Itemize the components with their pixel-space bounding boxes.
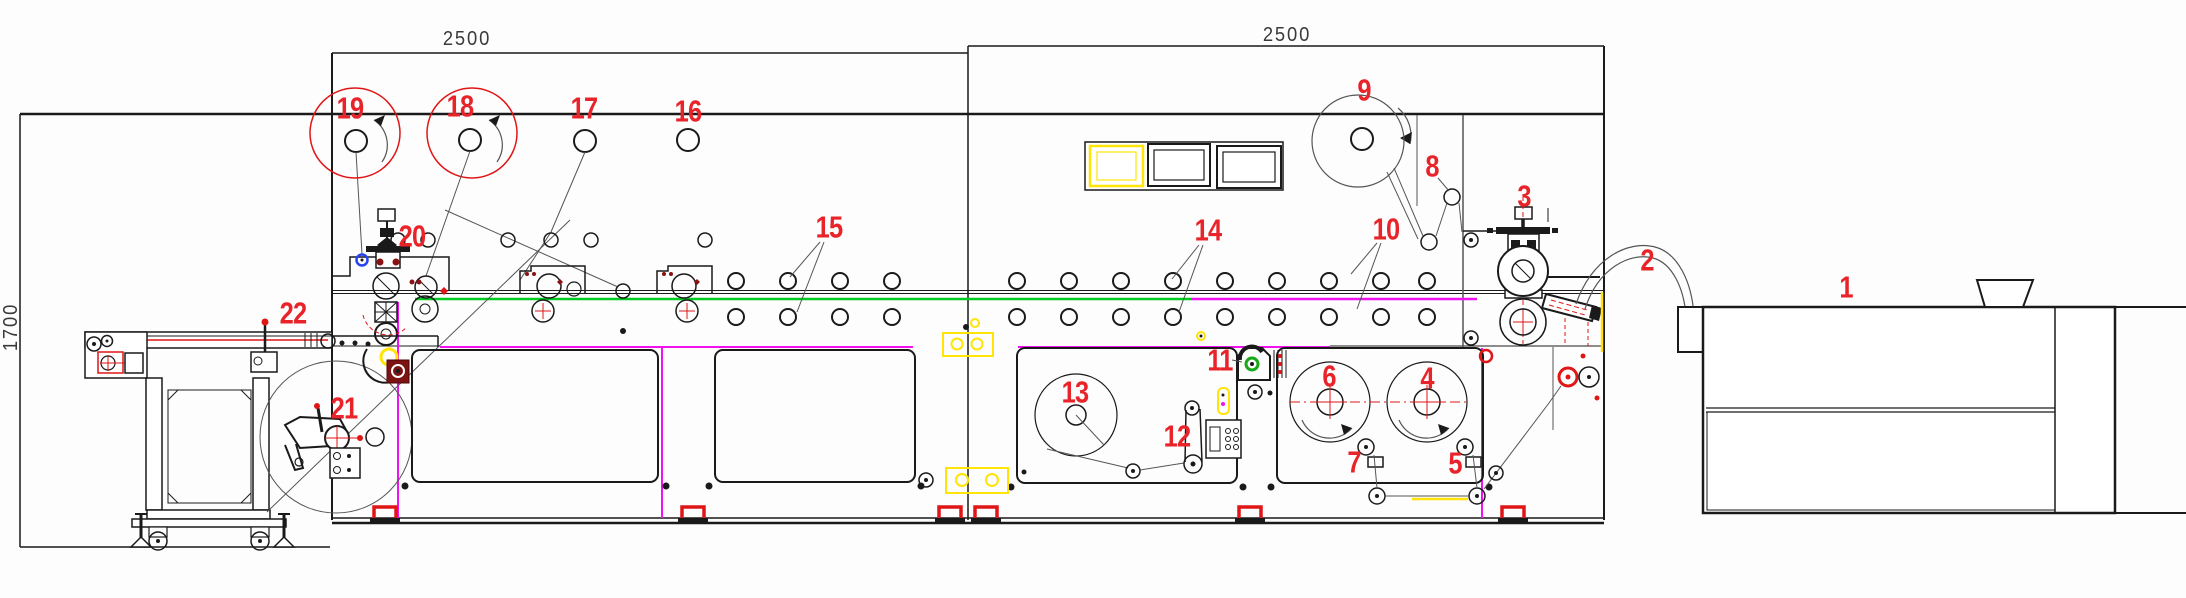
rotation-arrow-19: [374, 120, 387, 162]
foot-pad: [678, 518, 708, 523]
exit-chute: [1542, 294, 1596, 321]
press-station-3: [1463, 196, 1602, 362]
handle: [378, 209, 395, 221]
rivet-roller: [1009, 309, 1025, 325]
roll-9: [1312, 95, 1404, 187]
hopper: [1977, 280, 2033, 307]
part-label-22: 22: [280, 298, 307, 329]
rivet-roller: [728, 273, 744, 289]
panel-window: [412, 350, 658, 482]
leveling-foot: [939, 507, 961, 518]
dimension-height-1700: 1700: [1, 303, 21, 351]
leveling-foot: [1239, 507, 1261, 518]
roller-18: [459, 129, 481, 151]
rivet-roller: [1269, 273, 1285, 289]
rivet-roller: [1113, 309, 1129, 325]
rivet-roller: [832, 273, 848, 289]
leveling-foot: [975, 507, 997, 518]
control-panel: [1085, 142, 1283, 190]
part-label-21: 21: [331, 393, 358, 424]
idler-circle: [698, 233, 712, 247]
rivet-roller: [1373, 273, 1389, 289]
machine-feet: [370, 507, 1528, 523]
panel-window: [715, 350, 915, 482]
part-label-1: 1: [1839, 272, 1852, 303]
leader-lines: [790, 178, 1449, 362]
rivet-roller: [1373, 309, 1389, 325]
rivet-roller: [832, 309, 848, 325]
part-label-20: 20: [399, 221, 426, 252]
part-label-11: 11: [1207, 345, 1232, 376]
rivet-roller: [1419, 309, 1435, 325]
leveling-foot: [682, 507, 704, 518]
foot-pad: [971, 518, 1001, 523]
part-label-18: 18: [447, 91, 474, 122]
part-label-19: 19: [337, 93, 364, 124]
machine-1-body: [1703, 307, 2115, 513]
foot-pad: [370, 518, 400, 523]
station-11: [1238, 346, 1286, 399]
part-label-9: 9: [1357, 75, 1370, 106]
part-label-13: 13: [1062, 377, 1089, 408]
leveling-foot: [374, 507, 396, 518]
part-label-8: 8: [1425, 151, 1438, 182]
rivet-roller: [1321, 309, 1337, 325]
part-label-17: 17: [571, 93, 598, 124]
upper-rollers-16-19: [345, 129, 699, 152]
rivet-roller: [728, 309, 744, 325]
infeed-tab: [1678, 307, 1703, 352]
part-label-4: 4: [1420, 363, 1433, 394]
rotation-arrow-18: [489, 120, 502, 162]
roll-13-unwinder: [1035, 374, 1184, 478]
dimension-left-2500: 2500: [443, 29, 491, 49]
control-box-12: [1206, 420, 1241, 458]
rivet-roller: [780, 309, 796, 325]
station-12: [1184, 388, 1241, 473]
roller-17: [574, 130, 596, 152]
station-20-cluster: [332, 209, 449, 383]
dancer-roller: [1421, 234, 1437, 250]
dimension-right-2500: 2500: [1263, 25, 1311, 45]
rivet-roller: [1217, 309, 1233, 325]
rivet-roller: [1269, 309, 1285, 325]
panel-window: [1017, 348, 1237, 483]
line-art: [0, 0, 2186, 598]
roller-19: [345, 130, 367, 152]
rivet-roller: [1009, 273, 1025, 289]
rivet-roller: [1419, 273, 1435, 289]
rivet-roller: [1165, 273, 1181, 289]
part-label-5: 5: [1448, 448, 1461, 479]
machine-layout-drawing: 12345678910111213141516171819202122 2500…: [0, 0, 2186, 598]
pin-22-tip: [262, 319, 269, 326]
rivet-roller: [884, 309, 900, 325]
part-label-6: 6: [1322, 361, 1335, 392]
rivet-roller: [884, 273, 900, 289]
part-label-10: 10: [1373, 214, 1400, 245]
idler-circle: [584, 233, 598, 247]
rivet-roller: [1113, 273, 1129, 289]
rivet-roller: [1061, 309, 1077, 325]
part-label-7: 7: [1347, 447, 1360, 478]
rivet-roller: [780, 273, 796, 289]
part-label-2: 2: [1640, 245, 1653, 276]
part-label-14: 14: [1195, 215, 1222, 246]
rivet-roller: [1165, 309, 1181, 325]
foot-pad: [1498, 518, 1528, 523]
rivet-roller: [1061, 273, 1077, 289]
guide-roller-8: [1444, 189, 1460, 205]
foot-pad: [935, 518, 965, 523]
rivet-roller: [1217, 273, 1233, 289]
machine-1: [1678, 280, 2186, 513]
leveling-foot: [1502, 507, 1524, 518]
foot-pad: [1235, 518, 1265, 523]
rivet-roller: [1321, 273, 1337, 289]
roller-16: [677, 129, 699, 151]
part-label-15: 15: [816, 212, 843, 243]
part-label-12: 12: [1164, 421, 1191, 452]
part-label-16: 16: [675, 96, 702, 127]
part-label-3: 3: [1517, 181, 1530, 212]
